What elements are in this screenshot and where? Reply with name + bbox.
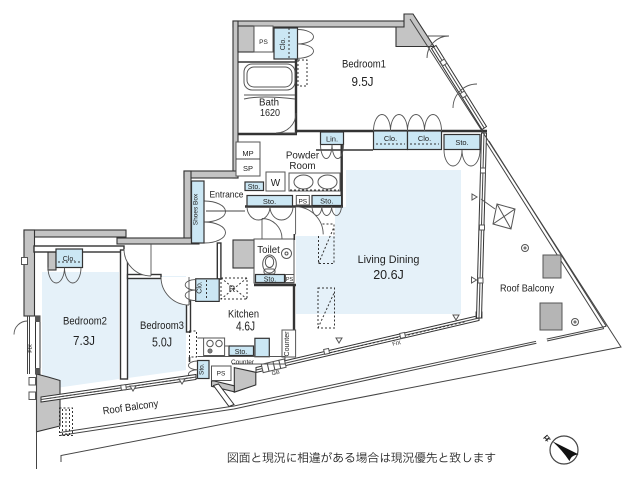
svg-text:Lin.: Lin.: [326, 135, 338, 144]
svg-text:Sto.: Sto.: [264, 277, 277, 284]
svg-text:Entrance: Entrance: [210, 190, 244, 200]
svg-text:Bath: Bath: [259, 98, 279, 109]
svg-text:PS: PS: [259, 39, 268, 46]
svg-text:Sto.: Sto.: [263, 197, 276, 206]
svg-text:Sto.: Sto.: [199, 363, 206, 375]
svg-text:FIX: FIX: [28, 344, 34, 353]
svg-text:Clo.: Clo.: [63, 256, 76, 263]
svg-text:Living Dining: Living Dining: [358, 254, 420, 266]
svg-text:1620: 1620: [260, 108, 280, 119]
svg-text:Sto.: Sto.: [455, 138, 468, 147]
svg-text:Sto.: Sto.: [248, 184, 261, 191]
svg-text:5.0J: 5.0J: [152, 336, 172, 350]
svg-text:20.6J: 20.6J: [373, 268, 404, 282]
svg-text:Bedroom1: Bedroom1: [342, 59, 386, 71]
svg-text:Clo.: Clo.: [197, 281, 204, 294]
svg-text:W: W: [271, 178, 281, 189]
svg-text:Clo.: Clo.: [384, 134, 397, 143]
svg-text:Bedroom3: Bedroom3: [140, 320, 184, 332]
svg-text:Sto.: Sto.: [320, 197, 333, 206]
svg-text:Sto.: Sto.: [235, 349, 248, 356]
svg-text:R: R: [229, 284, 236, 294]
svg-text:Roof Balcony: Roof Balcony: [500, 284, 555, 295]
svg-text:SP: SP: [243, 164, 253, 173]
svg-text:PS: PS: [286, 277, 294, 283]
svg-text:Shoes Box: Shoes Box: [193, 193, 200, 225]
svg-text:Toilet: Toilet: [257, 245, 280, 256]
svg-text:Bedroom2: Bedroom2: [63, 316, 107, 328]
svg-text:Clo.: Clo.: [280, 38, 287, 51]
svg-text:7.3J: 7.3J: [73, 334, 95, 348]
svg-text:9.5J: 9.5J: [352, 74, 374, 89]
svg-text:PS: PS: [217, 371, 226, 378]
svg-text:PS: PS: [298, 198, 307, 205]
svg-text:Counter: Counter: [231, 359, 255, 366]
svg-text:Clo.: Clo.: [418, 134, 431, 143]
svg-text:MP: MP: [242, 149, 253, 158]
svg-text:4.6J: 4.6J: [236, 320, 255, 334]
svg-text:Room: Room: [289, 161, 315, 172]
svg-text:Counter: Counter: [284, 331, 291, 357]
